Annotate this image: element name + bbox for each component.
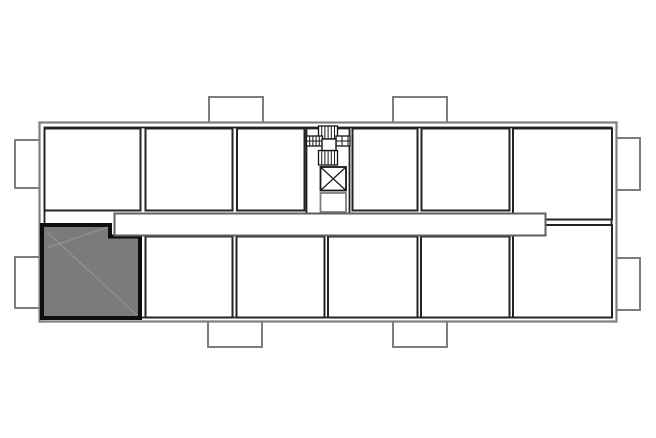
corridor <box>115 214 546 236</box>
balcony-bottom-right <box>393 321 447 347</box>
balcony-bottom-left <box>208 321 262 347</box>
room-top-1[interactable] <box>45 129 141 211</box>
room-bottom-3[interactable] <box>237 237 325 318</box>
room-top-5[interactable] <box>422 129 510 211</box>
room-bottom-5[interactable] <box>421 237 510 318</box>
balcony-left-bottom <box>15 257 40 308</box>
room-top-2[interactable] <box>146 129 233 211</box>
balcony-top-right <box>393 97 447 124</box>
floor-plan-svg <box>0 0 656 438</box>
balcony-top-left <box>209 97 263 124</box>
room-top-6[interactable] <box>513 129 612 220</box>
service-shaft <box>321 193 347 212</box>
balcony-right-bottom <box>616 258 640 310</box>
room-bottom-2[interactable] <box>146 237 233 318</box>
room-top-4[interactable] <box>353 129 418 211</box>
room-top-3[interactable] <box>237 129 305 211</box>
stair-landing <box>322 139 336 151</box>
balcony-right-top <box>616 138 640 190</box>
balcony-left-top <box>15 140 40 188</box>
room-bottom-4[interactable] <box>328 237 418 318</box>
room-bottom-6[interactable] <box>513 225 612 318</box>
floor-plan <box>0 0 656 438</box>
